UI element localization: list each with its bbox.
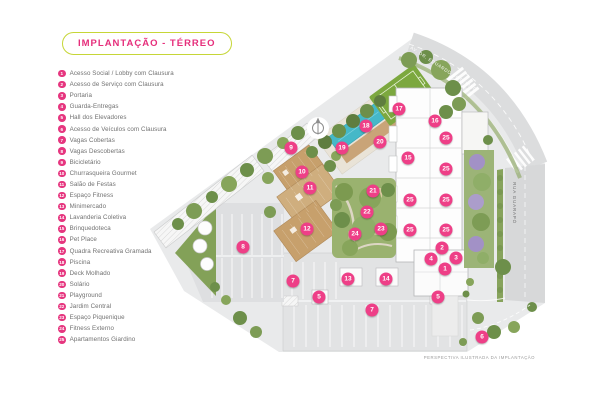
- plan-marker-number: 22: [363, 209, 370, 216]
- plan-marker: 25: [440, 224, 453, 237]
- plan-marker-number: 25: [442, 227, 449, 234]
- plan-marker-number: 11: [307, 185, 314, 192]
- tank: [201, 258, 214, 271]
- plan-marker: 6: [476, 331, 489, 344]
- plan-marker-number: 4: [429, 256, 433, 263]
- ramp: [282, 296, 298, 306]
- plan-marker: 11: [304, 182, 317, 195]
- plan-marker-number: 20: [376, 139, 383, 146]
- plan-marker-number: 2: [440, 245, 444, 252]
- plan-marker: 25: [404, 194, 417, 207]
- plan-marker-number: 18: [362, 123, 369, 130]
- site-plan: AV. DR. EDUARDO COTCHING RUA GUARAPÓ PER…: [0, 0, 600, 400]
- plan-marker: 14: [380, 273, 393, 286]
- plan-marker-number: 5: [317, 294, 321, 301]
- plan-marker: 2: [436, 242, 449, 255]
- plan-marker-number: 10: [298, 169, 305, 176]
- plan-marker-number: 25: [406, 227, 413, 234]
- plan-marker-number: 7: [370, 307, 374, 314]
- plan-marker: 4: [425, 253, 438, 266]
- plan-marker-number: 15: [404, 155, 411, 162]
- plan-marker: 13: [342, 273, 355, 286]
- plan-marker-number: 25: [442, 135, 449, 142]
- plan-marker: 3: [450, 252, 463, 265]
- plan-marker: 24: [349, 228, 362, 241]
- plan-marker: 25: [440, 163, 453, 176]
- plan-marker-number: 6: [480, 334, 484, 341]
- tank: [198, 221, 212, 235]
- plan-marker: 22: [361, 206, 374, 219]
- plan-marker: 19: [336, 142, 349, 155]
- plan-marker: 16: [429, 115, 442, 128]
- plan-marker-number: 19: [338, 145, 345, 152]
- side-street-label: RUA GUARAPÓ: [512, 182, 518, 224]
- plan-marker: 1: [439, 263, 452, 276]
- plan-marker-number: 23: [377, 226, 384, 233]
- plan-marker: 25: [440, 194, 453, 207]
- plan-marker: 9: [285, 142, 298, 155]
- plan-marker-number: 9: [289, 145, 293, 152]
- plan-marker: 5: [313, 291, 326, 304]
- plan-marker: 25: [440, 132, 453, 145]
- page: IMPLANTAÇÃO - TÉRREO 1 Acesso Social / L…: [0, 0, 600, 400]
- plan-marker: 8: [237, 241, 250, 254]
- plan-marker: 12: [301, 223, 314, 236]
- plan-marker: 7: [287, 275, 300, 288]
- plan-caption: PERSPECTIVA ILUSTRADA DA IMPLANTAÇÃO: [424, 355, 535, 360]
- north-arrow-icon: [307, 117, 329, 139]
- plan-marker-number: 14: [382, 276, 389, 283]
- plan-marker-number: 7: [291, 278, 295, 285]
- plan-marker-number: 1: [443, 266, 447, 273]
- plan-marker: 15: [402, 152, 415, 165]
- plan-marker-number: 13: [344, 276, 351, 283]
- plan-marker-number: 21: [369, 188, 376, 195]
- plan-marker: 25: [404, 224, 417, 237]
- plan-marker: 5: [432, 291, 445, 304]
- plan-marker: 18: [360, 120, 373, 133]
- plan-marker-number: 25: [442, 166, 449, 173]
- plan-marker-number: 16: [431, 118, 438, 125]
- plan-marker: 7: [366, 304, 379, 317]
- plan-marker-number: 25: [406, 197, 413, 204]
- plan-marker: 20: [374, 136, 387, 149]
- plan-marker-number: 5: [436, 294, 440, 301]
- tank: [193, 239, 207, 253]
- plan-marker-number: 17: [395, 106, 402, 113]
- plan-marker: 17: [393, 103, 406, 116]
- plan-marker: 10: [296, 166, 309, 179]
- plan-marker-number: 24: [351, 231, 358, 238]
- plan-marker-number: 3: [454, 255, 458, 262]
- plan-marker-number: 12: [303, 226, 310, 233]
- plan-marker: 21: [367, 185, 380, 198]
- plan-marker: 23: [375, 223, 388, 236]
- plan-marker-number: 8: [241, 244, 245, 251]
- street-planting-bed: [464, 150, 494, 268]
- plan-marker-number: 25: [442, 197, 449, 204]
